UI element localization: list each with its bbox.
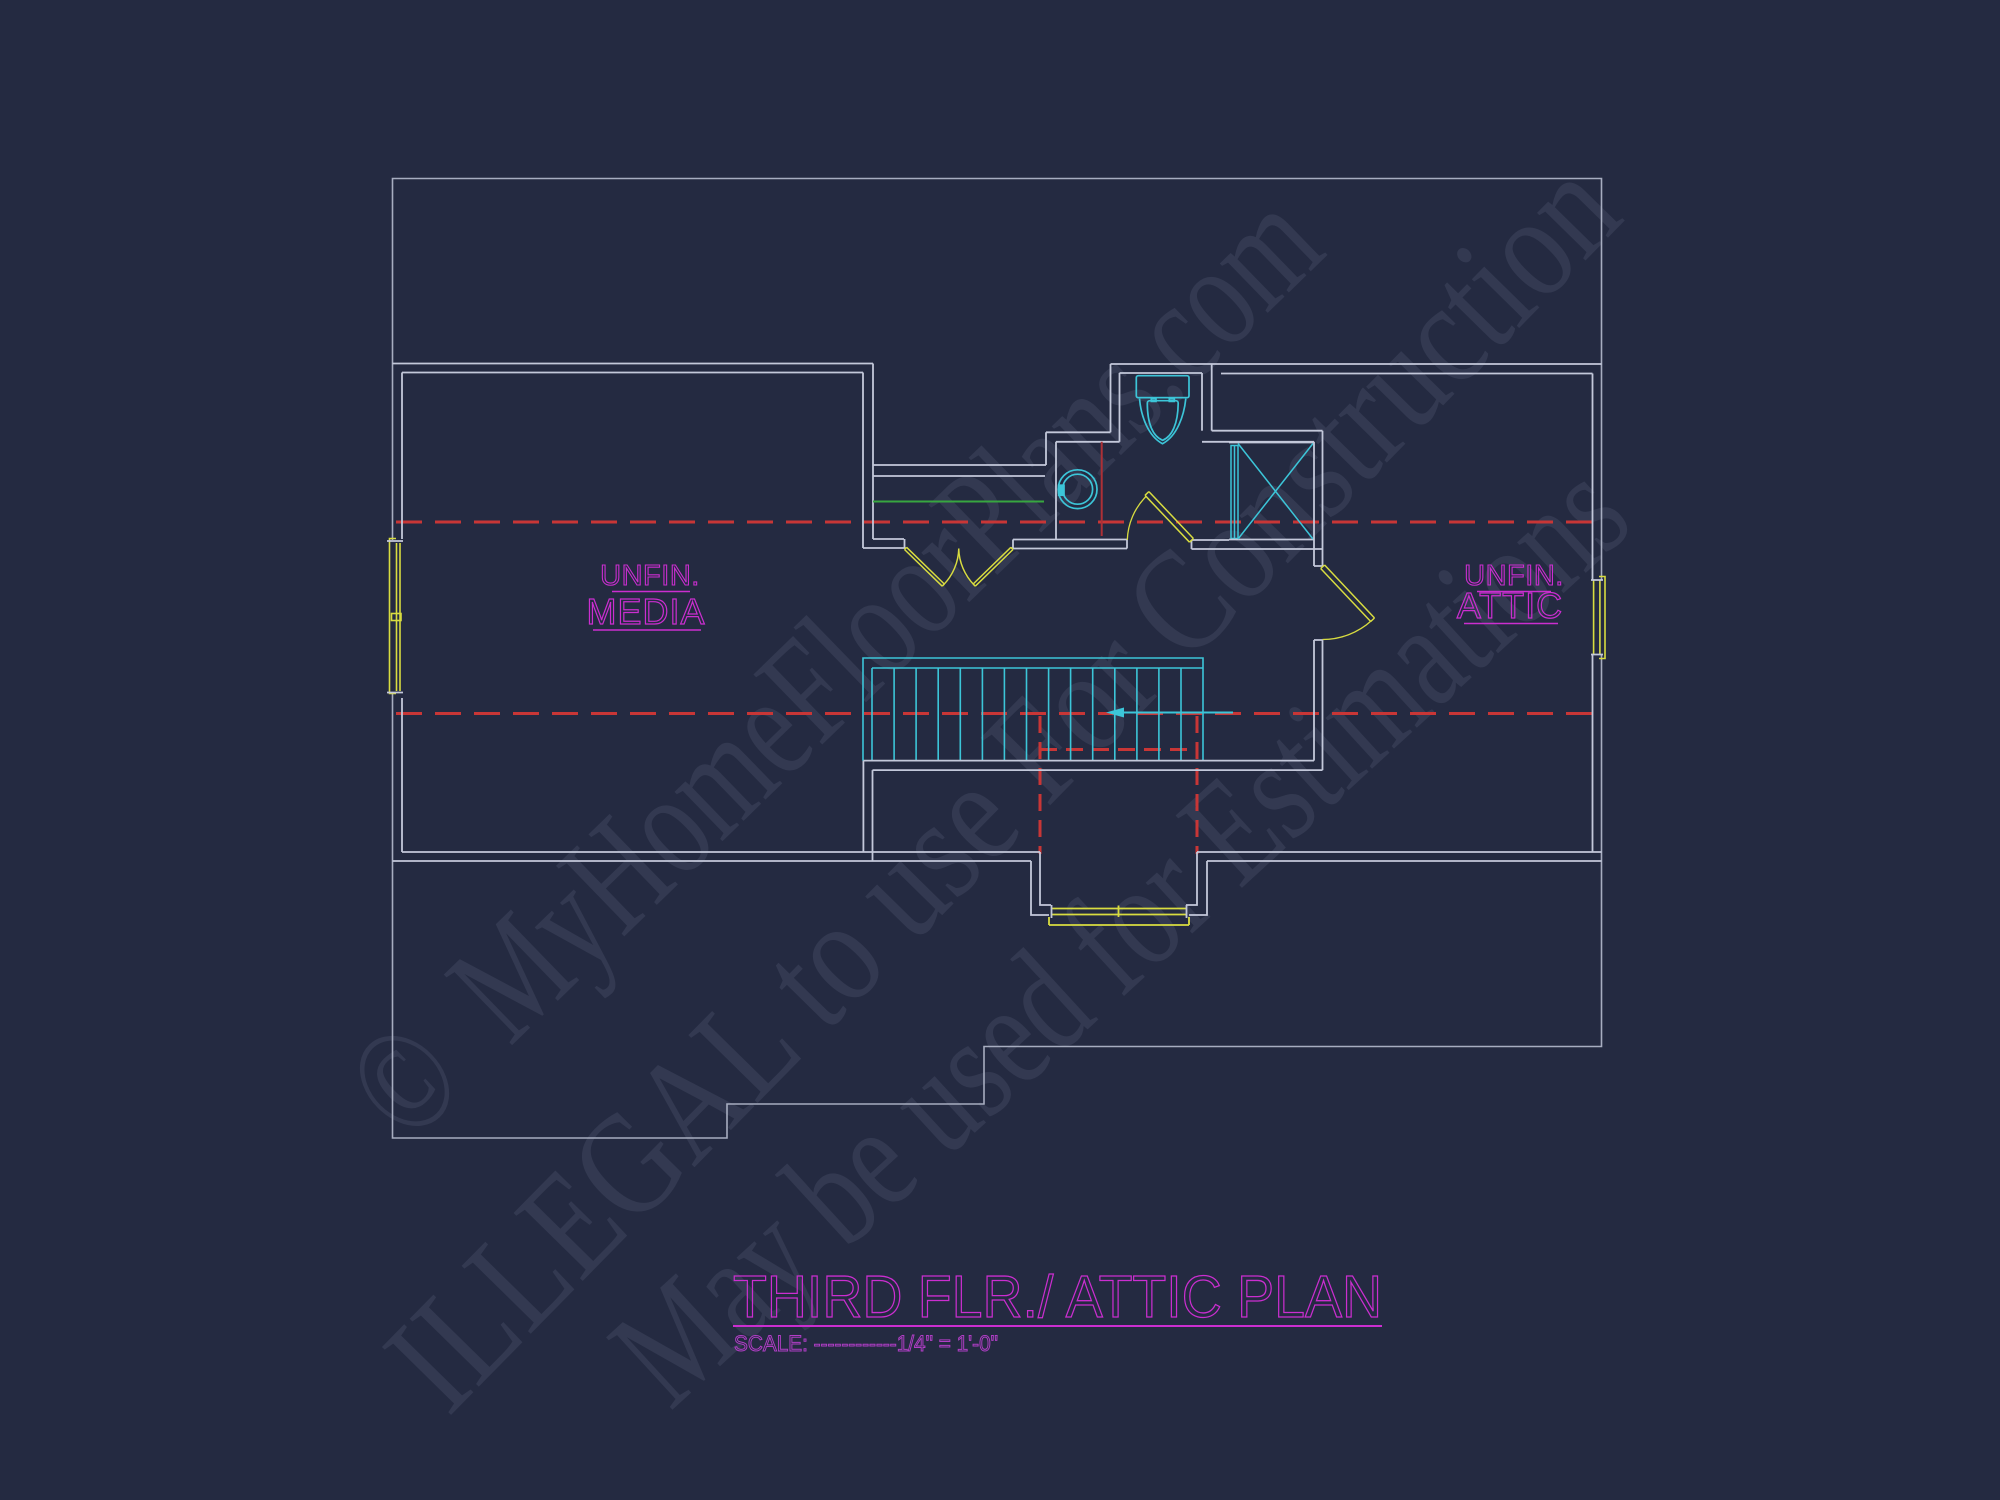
svg-text:ATTIC: ATTIC [1457, 585, 1563, 626]
svg-text:MEDIA: MEDIA [586, 591, 705, 632]
svg-text:SCALE: ------------1/4" = 1'-0: SCALE: ------------1/4" = 1'-0" [734, 1331, 998, 1356]
svg-text:UNFIN.: UNFIN. [600, 560, 700, 592]
svg-text:THIRD FLR./ ATTIC PLAN: THIRD FLR./ ATTIC PLAN [733, 1264, 1382, 1330]
